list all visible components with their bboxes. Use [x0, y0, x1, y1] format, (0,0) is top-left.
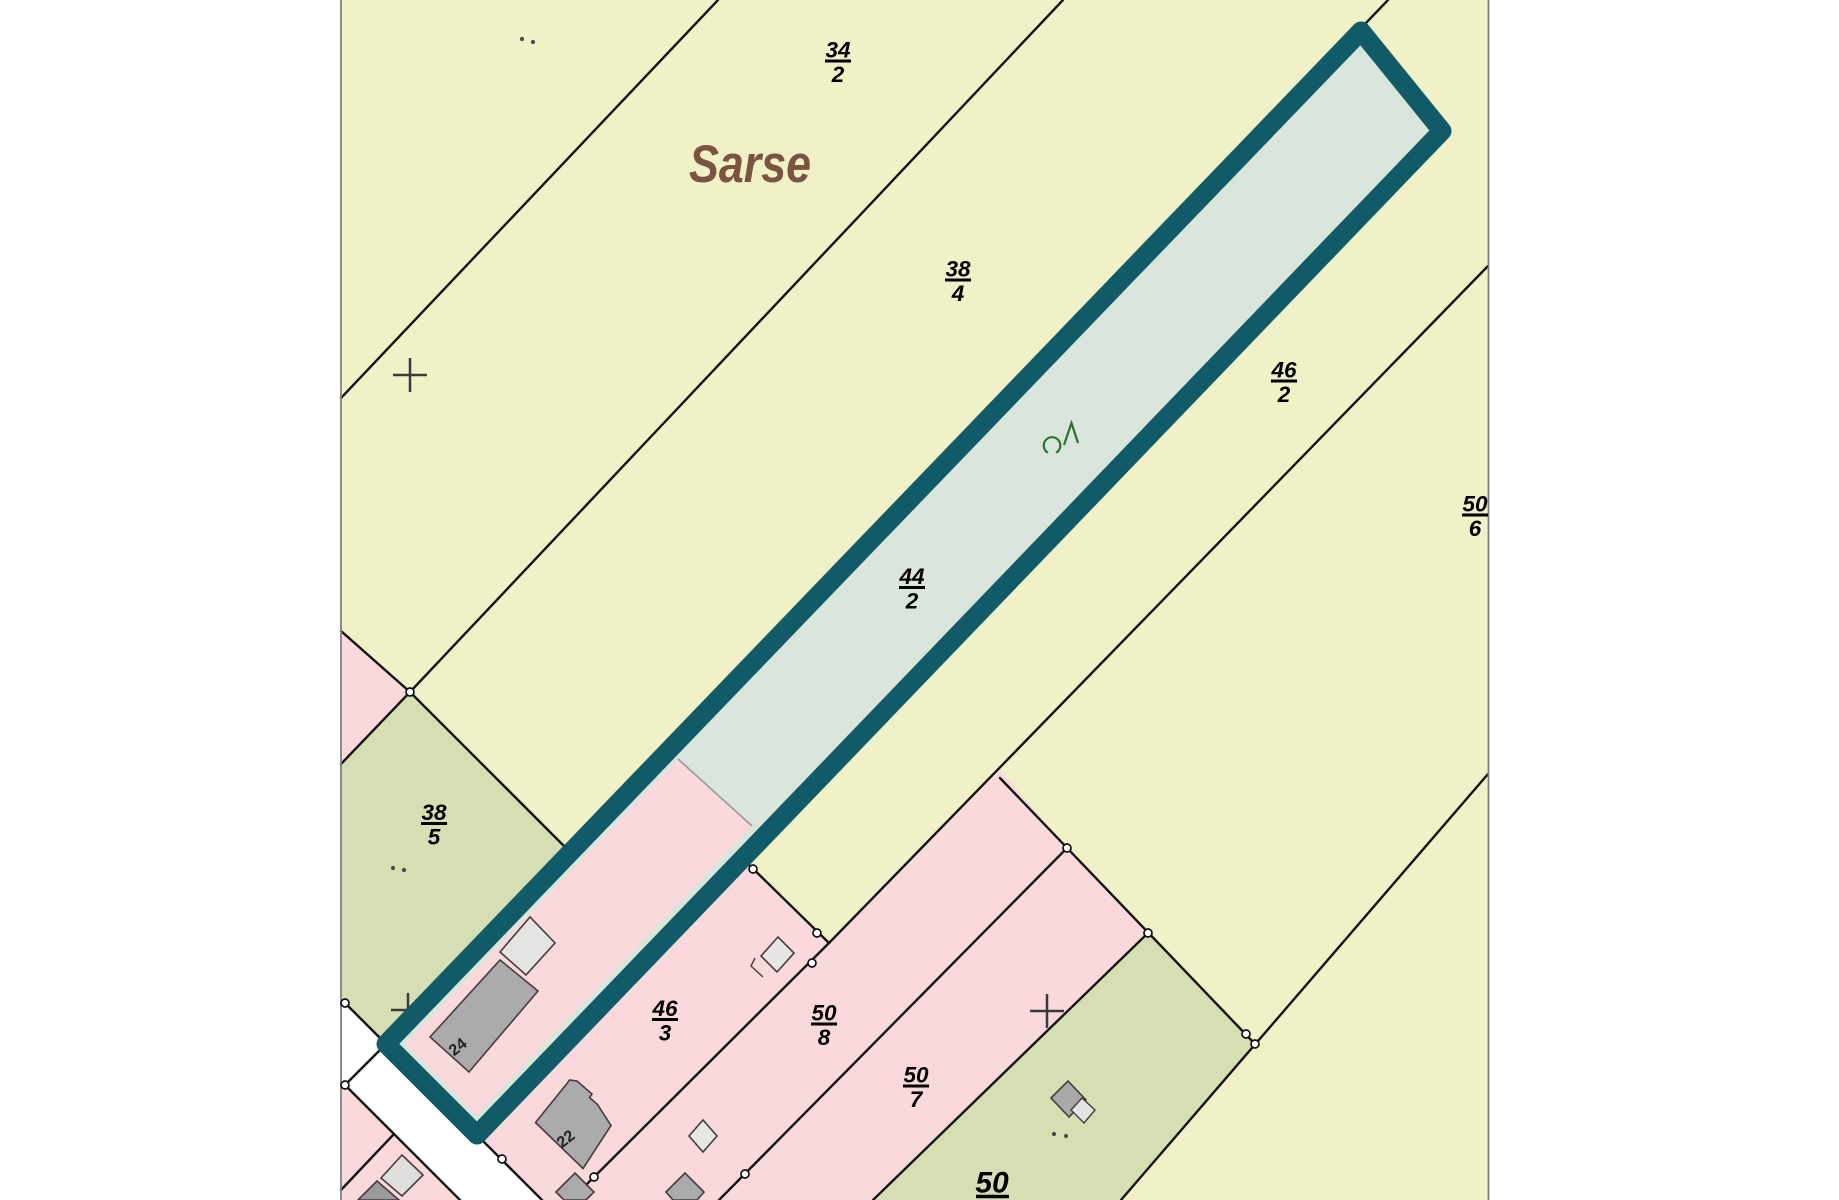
svg-text:38: 38 — [421, 800, 447, 825]
svg-text:46: 46 — [651, 996, 678, 1021]
svg-text:5: 5 — [428, 825, 441, 850]
svg-text:2: 2 — [1277, 382, 1291, 407]
svg-text:50: 50 — [903, 1063, 929, 1088]
svg-text:50: 50 — [811, 1001, 837, 1026]
svg-text:2: 2 — [905, 589, 919, 614]
svg-text:34: 34 — [825, 38, 851, 63]
svg-text:3: 3 — [659, 1021, 672, 1046]
svg-text:44: 44 — [898, 564, 925, 589]
svg-text:46: 46 — [1270, 358, 1297, 383]
svg-text:50: 50 — [975, 1167, 1009, 1200]
svg-text:7: 7 — [910, 1087, 924, 1112]
svg-text:Sarse: Sarse — [689, 135, 811, 194]
svg-text:8: 8 — [818, 1025, 831, 1050]
svg-text:2: 2 — [831, 62, 845, 87]
svg-text:4: 4 — [951, 281, 965, 306]
svg-text:38: 38 — [945, 257, 971, 282]
svg-text:50: 50 — [1462, 492, 1488, 517]
svg-text:6: 6 — [1469, 516, 1482, 541]
